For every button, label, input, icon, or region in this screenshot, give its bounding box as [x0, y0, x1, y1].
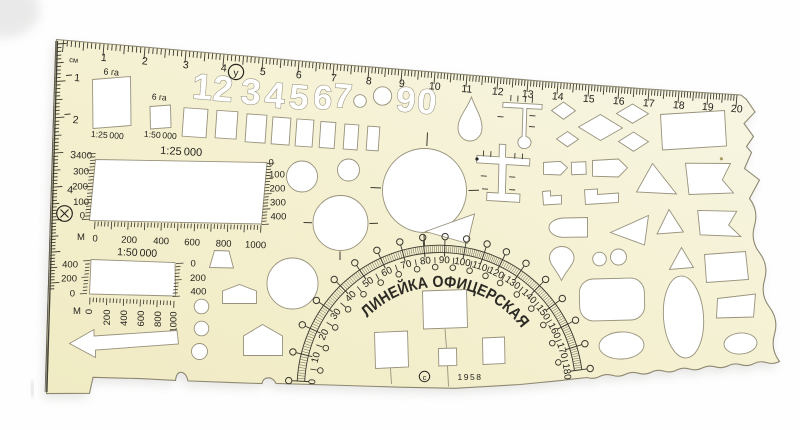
svg-text:2: 2 [72, 114, 79, 126]
svg-text:200: 200 [190, 273, 206, 284]
svg-text:200: 200 [121, 235, 137, 247]
svg-text:400: 400 [76, 151, 92, 162]
svg-text:1000: 1000 [245, 240, 267, 252]
svg-text:400: 400 [153, 236, 169, 248]
svg-text:20: 20 [730, 103, 743, 116]
svg-text:4: 4 [263, 74, 286, 116]
svg-text:16: 16 [612, 95, 625, 108]
svg-text:1:50 000: 1:50 000 [117, 246, 158, 260]
svg-text:1958: 1958 [458, 372, 483, 382]
svg-text:с: с [423, 373, 427, 382]
svg-text:2: 2 [141, 55, 148, 67]
svg-text:1: 1 [74, 72, 81, 84]
svg-text:400: 400 [191, 287, 207, 298]
svg-text:600: 600 [136, 311, 147, 327]
svg-text:600: 600 [184, 237, 200, 249]
svg-text:180: 180 [560, 363, 573, 381]
svg-text:300: 300 [270, 198, 286, 209]
svg-text:14: 14 [551, 90, 564, 103]
svg-text:6 га: 6 га [151, 91, 167, 102]
svg-text:1:25 000: 1:25 000 [160, 145, 203, 159]
svg-text:2: 2 [211, 67, 234, 109]
svg-text:800: 800 [153, 311, 164, 327]
svg-text:18: 18 [672, 99, 685, 112]
svg-text:3: 3 [239, 70, 262, 112]
svg-text:6: 6 [312, 78, 334, 117]
svg-text:200: 200 [270, 184, 286, 195]
svg-text:400: 400 [62, 260, 78, 271]
svg-text:0: 0 [191, 259, 196, 270]
svg-text:0: 0 [84, 309, 95, 314]
svg-text:200: 200 [102, 310, 113, 326]
svg-text:300: 300 [73, 167, 89, 178]
svg-text:1000: 1000 [169, 312, 180, 333]
svg-text:3: 3 [182, 59, 189, 71]
svg-text:400: 400 [119, 310, 130, 326]
svg-text:80: 80 [419, 255, 432, 267]
svg-text:800: 800 [215, 238, 231, 250]
svg-text:1: 1 [191, 65, 214, 107]
svg-text:0: 0 [70, 289, 75, 300]
svg-text:400: 400 [271, 212, 287, 223]
svg-text:200: 200 [61, 274, 77, 285]
svg-text:М: М [77, 232, 85, 243]
svg-text:11: 11 [461, 83, 473, 96]
svg-text:17: 17 [642, 97, 655, 110]
svg-text:cм: cм [69, 55, 79, 65]
svg-text:5: 5 [288, 77, 310, 117]
svg-text:М: М [73, 306, 81, 317]
svg-text:12: 12 [491, 85, 504, 98]
svg-text:90: 90 [439, 255, 451, 266]
svg-text:6 га: 6 га [103, 66, 119, 77]
svg-text:9: 9 [395, 80, 417, 120]
svg-text:15: 15 [582, 93, 595, 106]
svg-text:7: 7 [332, 77, 354, 116]
svg-text:8: 8 [365, 75, 372, 87]
svg-text:0: 0 [92, 233, 98, 244]
svg-text:1: 1 [100, 52, 107, 64]
svg-text:0: 0 [416, 82, 438, 122]
